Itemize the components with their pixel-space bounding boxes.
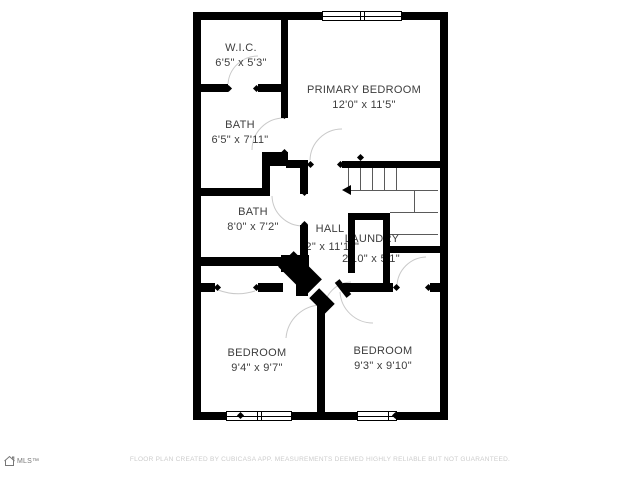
- stair-direction-arrow-icon: [342, 185, 351, 195]
- stair-landing-line: [348, 190, 438, 191]
- room-dimensions: 9'4" x 9'7": [228, 361, 287, 376]
- mls-logo: MLS™: [3, 455, 39, 467]
- room-label-hall-name: HALL: [316, 222, 345, 237]
- stair-riser: [372, 168, 373, 190]
- house-icon: [3, 455, 16, 467]
- room-name: PRIMARY BEDROOM: [307, 83, 421, 98]
- wall-stairs-bottom: [390, 246, 448, 253]
- wall-bed2-top: [343, 283, 393, 292]
- room-label-bedroom-right: BEDROOM 9'3" x 9'10": [354, 344, 413, 374]
- window-top: [322, 11, 402, 21]
- room-dimensions: 8'0" x 7'2": [227, 220, 278, 235]
- wall-outer-right: [440, 12, 448, 420]
- room-name: W.I.C.: [215, 41, 266, 56]
- room-label-bath-lower: BATH 8'0" x 7'2": [227, 205, 278, 235]
- wall-bath2-bottom: [201, 257, 282, 266]
- disclaimer-text: FLOOR PLAN CREATED BY CUBICASA APP. MEAS…: [0, 456, 640, 463]
- room-name: BEDROOM: [228, 346, 287, 361]
- wall-wic-right: [281, 18, 288, 92]
- stair-riser: [414, 190, 415, 213]
- room-label-bath-upper: BATH 6'5" x 7'11": [212, 118, 269, 148]
- wall-hall-left-lower: [300, 225, 308, 257]
- stair-riser: [396, 168, 397, 190]
- wall-bedroom-divider: [317, 299, 325, 412]
- room-name: HALL: [316, 222, 345, 237]
- wall-outer-left: [193, 12, 201, 420]
- room-dimensions: 6'5" x 5'3": [215, 56, 266, 71]
- wall-bed1-top-left: [201, 283, 215, 292]
- wall-bath-step: [262, 152, 270, 196]
- wall-wic-bottom-right: [258, 84, 288, 92]
- wall-bed1-top-right: [258, 283, 283, 292]
- room-label-wic: W.I.C. 6'5" x 5'3": [215, 41, 266, 71]
- stair-riser: [360, 168, 361, 190]
- room-dimensions: 9'3" x 9'10": [354, 359, 413, 374]
- wall-angled-chunk-c: [296, 278, 308, 296]
- wall-stairs-top: [342, 161, 442, 168]
- mls-logo-text: MLS™: [17, 458, 39, 465]
- room-name: BEDROOM: [354, 344, 413, 359]
- room-dimensions: 6'5" x 7'11": [212, 133, 269, 148]
- room-name: BATH: [227, 205, 278, 220]
- room-label-bedroom-left: BEDROOM 9'4" x 9'7": [228, 346, 287, 376]
- wall-laundry-left: [348, 213, 355, 273]
- room-label-primary-bedroom: PRIMARY BEDROOM 12'0" x 11'5": [307, 83, 421, 113]
- stair-riser: [384, 168, 385, 190]
- window-bottom-left: [226, 411, 292, 421]
- wall-outer-top: [193, 12, 448, 20]
- stair-winder-line: [390, 212, 438, 213]
- window-bottom-right: [357, 411, 397, 421]
- floor-plan-canvas: W.I.C. 6'5" x 5'3" PRIMARY BEDROOM 12'0"…: [0, 0, 640, 480]
- wall-bath-divider: [201, 188, 263, 196]
- wall-laundry-right: [383, 213, 390, 290]
- room-dimensions: 12'0" x 11'5": [307, 98, 421, 113]
- room-name: BATH: [212, 118, 269, 133]
